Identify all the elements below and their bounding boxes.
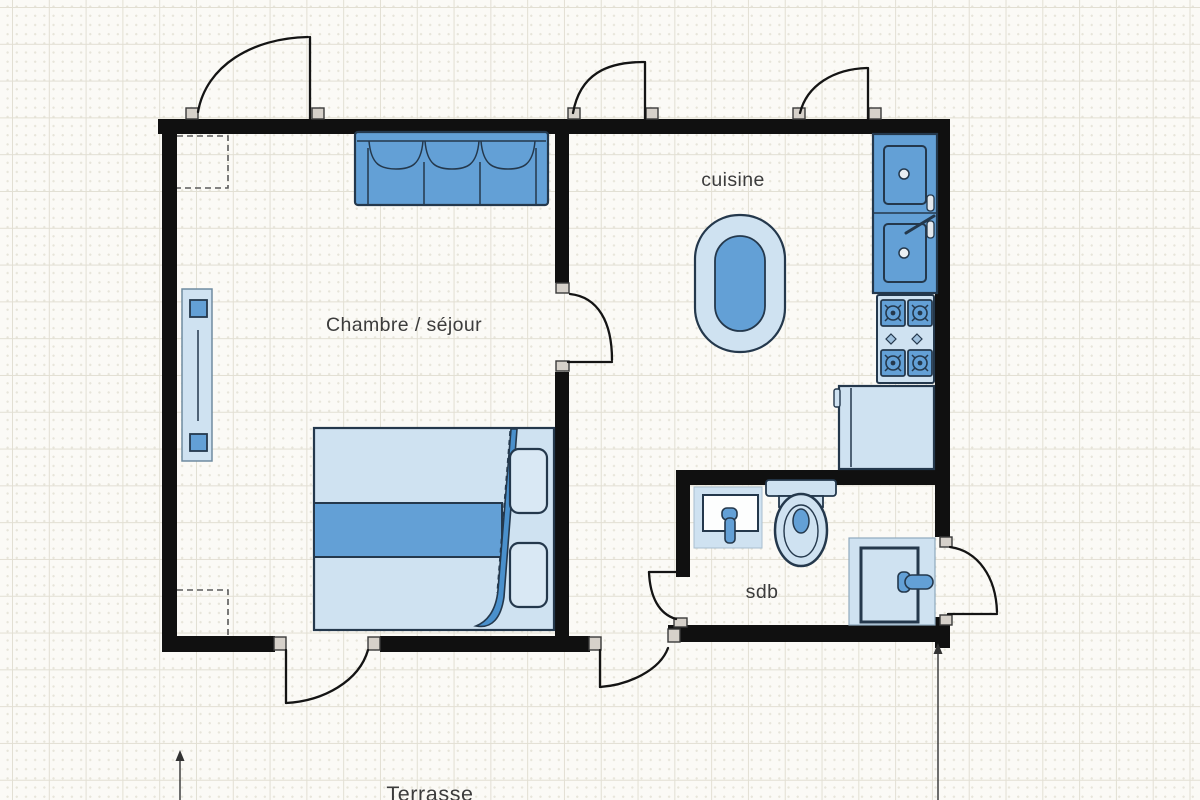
- wall-bottom-bathroom[interactable]: [668, 625, 950, 642]
- label-terrace: Terrasse: [386, 782, 473, 800]
- radiator[interactable]: [182, 289, 212, 461]
- door-swing-arc: [573, 62, 644, 113]
- label-kitchen: cuisine: [701, 169, 765, 191]
- door-jamb: [869, 108, 881, 119]
- door-jamb: [940, 537, 952, 547]
- door-jamb: [186, 108, 198, 119]
- door-swing-arc: [198, 37, 308, 112]
- door-jamb: [940, 615, 952, 625]
- wall-interior-upper[interactable]: [555, 134, 569, 283]
- wall-left[interactable]: [162, 134, 177, 652]
- burner: [908, 350, 932, 376]
- door-terrace-left[interactable]: [274, 637, 380, 703]
- dimension-arrow-right: [934, 643, 943, 800]
- basin-faucet: [725, 518, 735, 543]
- door-jamb: [368, 637, 380, 650]
- wall-bottom-left[interactable]: [162, 636, 275, 652]
- fridge-handle: [834, 389, 840, 407]
- door-bathroom[interactable]: [649, 565, 690, 627]
- wall-top[interactable]: [158, 119, 950, 134]
- door-terrace-right[interactable]: [589, 629, 680, 687]
- door-jamb: [556, 283, 569, 293]
- door-swing-arc: [800, 68, 867, 113]
- door-entrance-top-left[interactable]: [186, 37, 324, 119]
- label-bedroom-living: Chambre / séjour: [326, 314, 482, 336]
- shower-arm: [905, 575, 933, 589]
- sink-drain: [899, 169, 909, 179]
- double-bed[interactable]: [314, 428, 554, 630]
- double-sink-counter[interactable]: [873, 134, 937, 293]
- sofa-3-seats[interactable]: [355, 132, 548, 205]
- pillow: [510, 543, 547, 607]
- door-jamb: [312, 108, 324, 119]
- closet-dashed-top[interactable]: [177, 136, 228, 188]
- stove-4-burners[interactable]: [877, 295, 934, 383]
- pillow: [510, 449, 547, 513]
- door-hinge-block: [676, 565, 690, 577]
- toilet[interactable]: [766, 480, 836, 566]
- door-swing-arc: [570, 294, 612, 360]
- door-jamb: [589, 637, 601, 650]
- washbasin[interactable]: [694, 487, 762, 548]
- wall-bathroom-left[interactable]: [676, 485, 690, 577]
- door-swing-arc: [286, 650, 368, 703]
- label-bathroom: sdb: [746, 581, 779, 603]
- burner: [908, 300, 932, 326]
- door-jamb: [274, 637, 286, 650]
- door-living-to-kitchen[interactable]: [556, 283, 612, 371]
- closet-dashed-bottom[interactable]: [177, 590, 228, 637]
- burner: [881, 300, 905, 326]
- door-swing-arc: [649, 572, 676, 619]
- floorplan-canvas[interactable]: Chambre / séjour cuisine sdb Terrasse: [0, 0, 1200, 800]
- grid-paper-background: { "canvas": { "width_px": 1200, "height_…: [0, 0, 1200, 800]
- dimension-arrow-left: [176, 750, 185, 800]
- faucet: [927, 221, 934, 238]
- door-jamb: [646, 108, 658, 119]
- oval-table[interactable]: [695, 215, 785, 352]
- wall-interior-lower[interactable]: [555, 372, 569, 652]
- shower[interactable]: [849, 538, 935, 625]
- door-swing-arc: [950, 547, 997, 612]
- door-kitchen-top[interactable]: [568, 62, 658, 119]
- door-exterior-right[interactable]: [940, 537, 997, 625]
- faucet: [927, 195, 934, 211]
- door-jamb: [668, 629, 680, 642]
- door-swing-arc: [600, 648, 668, 687]
- fridge[interactable]: [834, 386, 934, 469]
- burner: [881, 350, 905, 376]
- sink-drain: [899, 248, 909, 258]
- door-kitchen-top-right[interactable]: [793, 68, 881, 119]
